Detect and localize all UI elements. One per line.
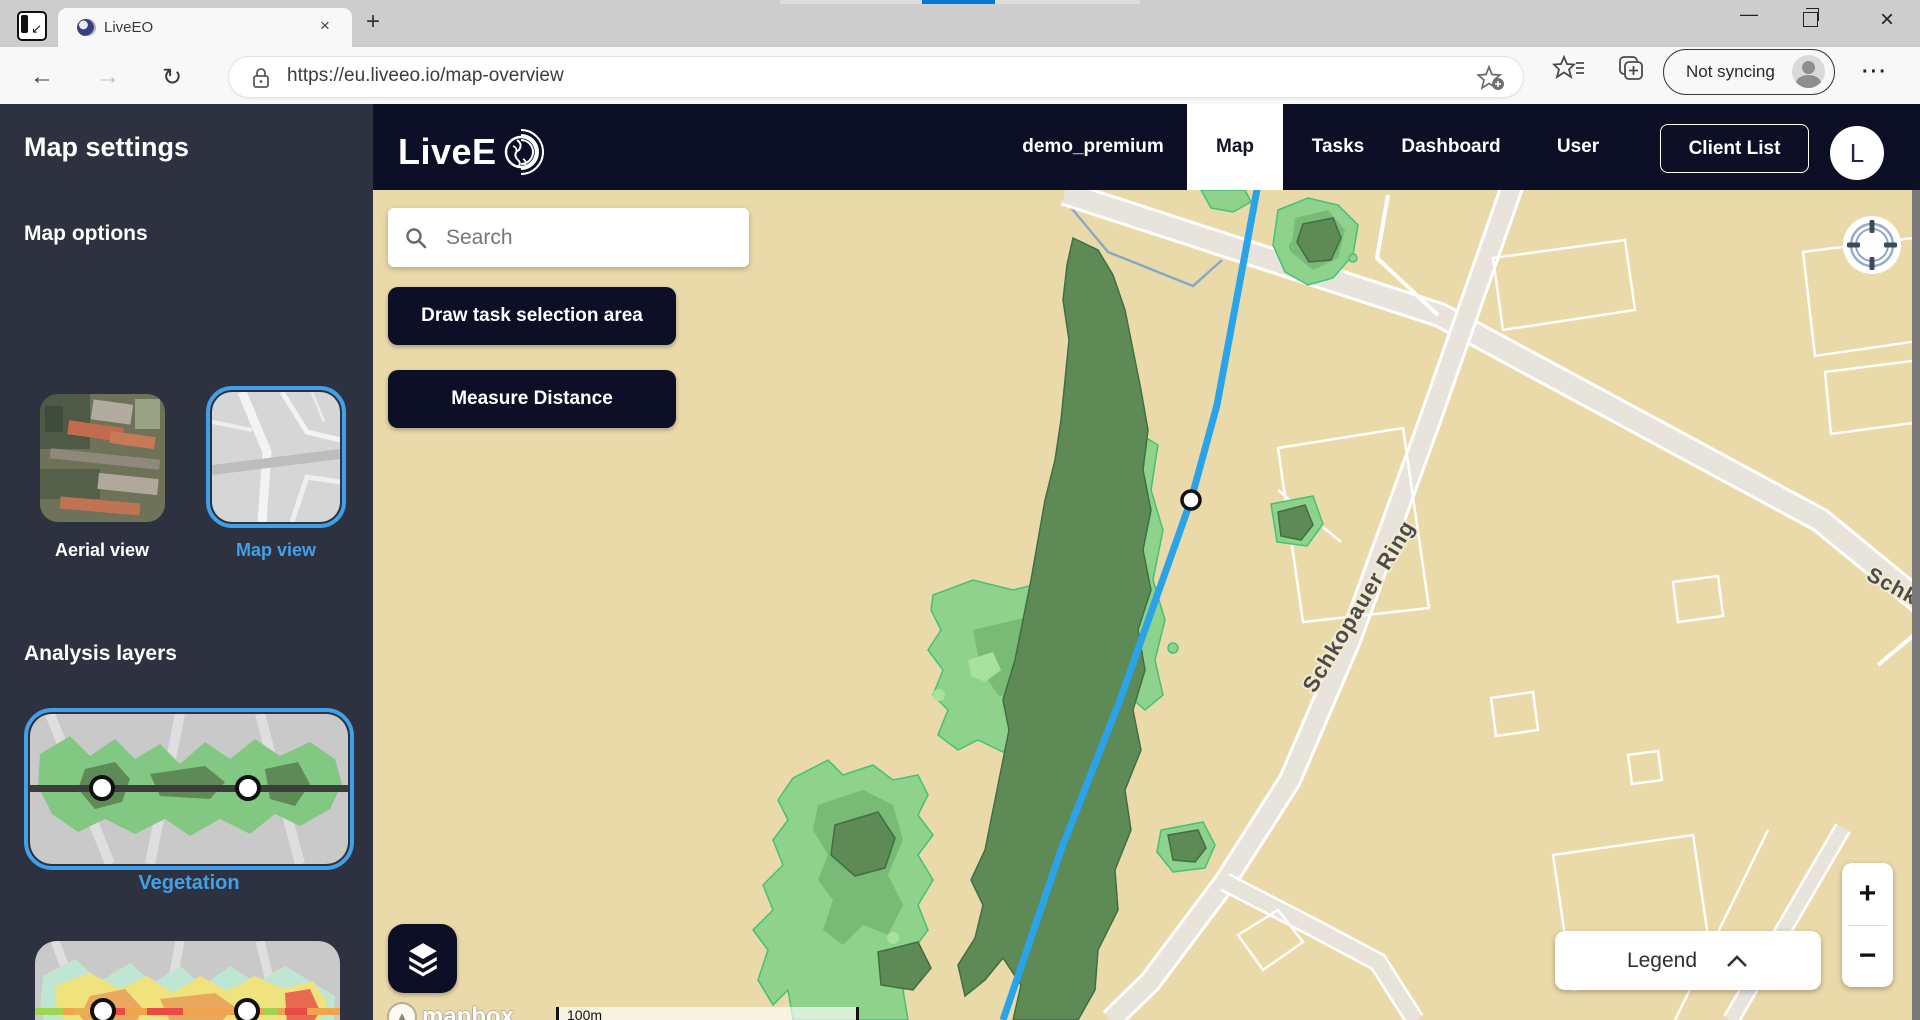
mapbox-logo-icon: ▲ (387, 1002, 417, 1020)
legend-label: Legend (1627, 949, 1697, 973)
back-icon[interactable]: ← (30, 63, 54, 91)
measure-distance-button[interactable]: Measure Distance (388, 370, 676, 428)
vegetation-layer-label[interactable]: Vegetation (30, 872, 348, 895)
map-search-box[interactable]: Search (388, 208, 749, 267)
browser-toolbar: ← → ↻ https://eu.liveeo.io/map-overview (0, 47, 1920, 105)
layers-button[interactable] (388, 924, 457, 993)
vegetation-layer-option[interactable] (30, 714, 348, 864)
liveeo-logo[interactable]: LiveE (398, 126, 557, 178)
tab-close-icon[interactable]: × (320, 16, 330, 36)
logo-globe-icon (499, 126, 557, 178)
browser-menu-icon[interactable]: ··· (1862, 61, 1888, 84)
background-tab-sliver (780, 0, 1140, 4)
search-icon (404, 226, 428, 250)
compass-icon[interactable] (1839, 212, 1905, 278)
refresh-icon[interactable]: ↻ (162, 63, 182, 92)
search-placeholder: Search (446, 226, 513, 250)
nav-tab-dashboard[interactable]: Dashboard (1391, 104, 1511, 190)
map-canvas[interactable]: Schkopauer Ring Schk Search Draw task se… (373, 190, 1920, 1020)
browser-tab-strip: ↙ LiveEO × + — × (0, 0, 1920, 47)
logo-text: LiveE (398, 131, 497, 173)
layers-icon (405, 940, 441, 978)
map-settings-panel: Map settings Map options (0, 104, 373, 1020)
map-view-label[interactable]: Map view (196, 540, 356, 561)
forward-icon: → (96, 63, 120, 91)
profile-label: Not syncing (1686, 62, 1775, 82)
window-close-button[interactable]: × (1872, 6, 1902, 34)
browser-app-icon-arrow: ↙ (31, 22, 42, 35)
tab-title: LiveEO (104, 19, 153, 36)
chevron-up-icon[interactable] (1725, 954, 1749, 968)
zoom-control: + − (1842, 863, 1893, 987)
client-list-button[interactable]: Client List (1660, 124, 1809, 173)
scale-label: 100m (567, 1007, 602, 1020)
app-navbar: LiveE demo_premium Map Tasks Dashboard U… (373, 104, 1920, 190)
browser-app-icon-glyph (21, 15, 28, 33)
favorites-icon[interactable] (1552, 54, 1586, 84)
scale-bar: 100m (556, 1007, 859, 1020)
scrollbar[interactable] (1912, 190, 1920, 1020)
window-minimize-button[interactable]: — (1734, 4, 1764, 25)
profile-button[interactable]: Not syncing (1663, 49, 1835, 95)
analysis-layers-heading: Analysis layers (24, 642, 177, 666)
browser-tab[interactable]: LiveEO × (58, 8, 352, 47)
org-name: demo_premium (1013, 104, 1173, 190)
browser-app-icon[interactable]: ↙ (17, 11, 47, 41)
map-view-option[interactable] (212, 392, 340, 522)
profile-avatar-icon (1792, 55, 1825, 88)
panel-title: Map settings (24, 132, 189, 163)
nav-tab-tasks[interactable]: Tasks (1293, 104, 1383, 190)
draw-task-area-button[interactable]: Draw task selection area (388, 287, 676, 345)
user-avatar[interactable]: L (1830, 126, 1884, 180)
legend-panel[interactable]: Legend (1555, 931, 1821, 990)
lock-icon (251, 67, 271, 89)
zoom-out-button[interactable]: − (1842, 926, 1893, 988)
new-tab-button[interactable]: + (366, 8, 380, 36)
mapbox-attribution[interactable]: ▲ mapbox (387, 1002, 514, 1020)
map-options-heading: Map options (24, 222, 148, 246)
powerline-marker[interactable] (1182, 491, 1200, 509)
screen: ↙ LiveEO × + — × ← → ↻ https://eu.liveeo… (0, 0, 1920, 1020)
mapbox-wordmark: mapbox (422, 1003, 514, 1020)
vegetation-risk-layer-option[interactable] (35, 941, 340, 1020)
zoom-in-button[interactable]: + (1842, 863, 1893, 925)
nav-tab-map[interactable]: Map (1187, 104, 1283, 190)
aerial-view-label[interactable]: Aerial view (18, 540, 186, 561)
nav-tab-user[interactable]: User (1538, 104, 1618, 190)
add-favorite-icon[interactable] (1477, 65, 1505, 91)
aerial-view-option[interactable] (40, 394, 165, 522)
collections-icon[interactable] (1616, 54, 1648, 84)
url-text[interactable]: https://eu.liveeo.io/map-overview (287, 65, 564, 87)
window-restore-button[interactable] (1803, 12, 1818, 27)
tab-loading-indicator (922, 0, 995, 4)
globe-favicon-icon (77, 19, 94, 36)
url-bar[interactable]: https://eu.liveeo.io/map-overview (228, 56, 1524, 98)
